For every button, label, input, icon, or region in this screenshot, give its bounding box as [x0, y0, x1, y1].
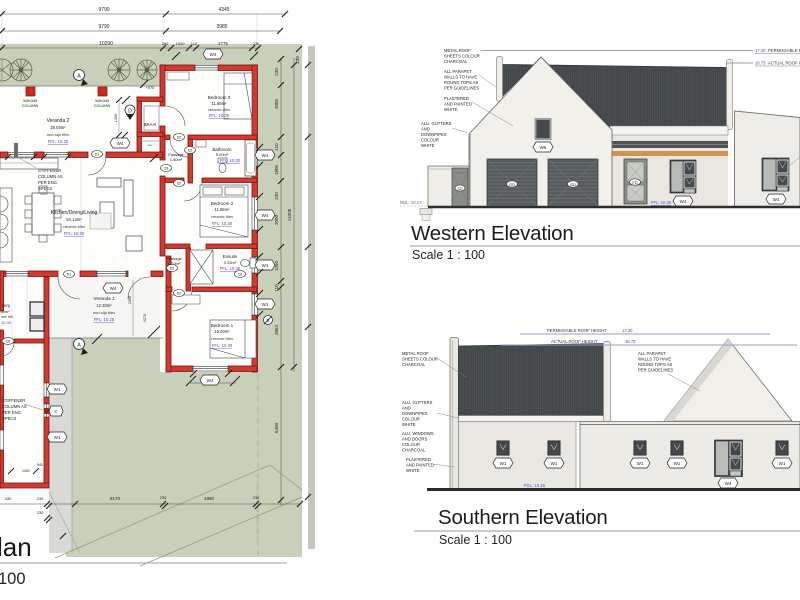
svg-text:ceramic tiles: ceramic tiles — [63, 224, 85, 229]
svg-text:345x345: 345x345 — [95, 99, 110, 103]
svg-text:D1: D1 — [95, 153, 100, 157]
svg-text:Kitchen/Dining/Living: Kitchen/Dining/Living — [51, 210, 98, 216]
svg-text:11.66m²: 11.66m² — [214, 207, 230, 212]
svg-text:W1: W1 — [551, 461, 558, 466]
svg-text:Scale 1 : 100: Scale 1 : 100 — [439, 533, 512, 547]
svg-text:WHITE: WHITE — [402, 422, 416, 427]
svg-text:W4: W4 — [680, 199, 687, 204]
svg-text:GD: GD — [570, 182, 576, 187]
svg-text:Scale 1 : 100: Scale 1 : 100 — [412, 248, 485, 262]
svg-text:3000: 3000 — [274, 98, 279, 109]
svg-text:10.30: 10.30 — [1, 320, 12, 325]
svg-text:110: 110 — [274, 143, 279, 151]
svg-text:W1: W1 — [54, 387, 61, 392]
svg-text:SPECS: SPECS — [2, 416, 16, 421]
svg-text:W4: W4 — [110, 286, 117, 291]
svg-text:Bedroom 3: Bedroom 3 — [208, 95, 231, 100]
svg-text:W4: W4 — [117, 141, 124, 146]
svg-text:940: 940 — [37, 463, 43, 467]
svg-text:PLASTERED: PLASTERED — [444, 96, 469, 101]
svg-text:PER GUIDELINES: PER GUIDELINES — [444, 86, 479, 91]
svg-text:FFL: 10.25: FFL: 10.25 — [94, 317, 115, 322]
svg-text:10290: 10290 — [99, 41, 113, 47]
svg-text:FFL: 10.30: FFL: 10.30 — [64, 231, 85, 236]
svg-text:ALU. GUTTERS: ALU. GUTTERS — [421, 121, 452, 126]
svg-text:1.80m²: 1.80m² — [170, 157, 183, 162]
svg-text:230: 230 — [274, 68, 279, 76]
svg-text:W5: W5 — [540, 145, 547, 150]
svg-text:230: 230 — [37, 496, 44, 501]
svg-text:AND: AND — [421, 127, 430, 132]
svg-text:METAL ROOF: METAL ROOF — [402, 351, 429, 356]
svg-text:PER GUIDELINES: PER GUIDELINES — [638, 368, 673, 373]
svg-text:STIFFENER: STIFFENER — [38, 168, 61, 173]
svg-text:COLUMN AS: COLUMN AS — [2, 404, 27, 409]
svg-text:W1: W1 — [54, 435, 61, 440]
svg-text:28.04m²: 28.04m² — [50, 125, 66, 130]
svg-text:D1: D1 — [67, 273, 72, 277]
svg-text:5.00m²: 5.00m² — [216, 152, 229, 157]
svg-text:5400: 5400 — [274, 422, 279, 433]
svg-text:W1: W1 — [779, 461, 786, 466]
svg-text:CHARCOAL: CHARCOAL — [402, 362, 426, 367]
svg-text:NGL: 10.17: NGL: 10.17 — [400, 200, 422, 205]
svg-text:+070: +070 — [146, 86, 155, 90]
svg-text:W1: W1 — [674, 461, 681, 466]
svg-text:C: C — [54, 409, 57, 414]
svg-text:W4: W4 — [207, 378, 214, 383]
svg-text:COLUMN AS: COLUMN AS — [38, 174, 63, 179]
svg-text:4345: 4345 — [218, 7, 229, 13]
svg-text:Western Elevation: Western Elevation — [411, 222, 574, 245]
svg-text:430: 430 — [5, 496, 12, 501]
svg-text:2775: 2775 — [218, 41, 229, 46]
svg-text:COLOUR: COLOUR — [402, 442, 420, 447]
svg-text:4890: 4890 — [204, 496, 215, 501]
svg-text:230: 230 — [160, 495, 167, 500]
svg-text:ALL PARAPET: ALL PARAPET — [638, 351, 666, 356]
svg-text:lan: lan — [0, 532, 32, 562]
svg-text:FFL: 10.30: FFL: 10.30 — [212, 221, 233, 226]
svg-text:Veranda 1: Veranda 1 — [94, 296, 115, 301]
svg-text:9790: 9790 — [98, 24, 109, 30]
svg-text:ROUND TOPS AS: ROUND TOPS AS — [444, 80, 478, 85]
svg-text:FFL: 10.25: FFL: 10.25 — [48, 139, 69, 144]
svg-text:Ensuite: Ensuite — [223, 254, 238, 259]
svg-text:ACTUAL ROOF HEIGHT: ACTUAL ROOF HEIGHT — [551, 339, 598, 344]
svg-text:WALLS TO HAVE: WALLS TO HAVE — [638, 357, 671, 362]
svg-text:BRAAI: BRAAI — [144, 122, 157, 127]
svg-text:D2: D2 — [188, 149, 193, 153]
svg-text:2300: 2300 — [128, 296, 132, 304]
svg-text:W4: W4 — [773, 197, 780, 202]
svg-text:WHITE: WHITE — [444, 107, 458, 112]
svg-text:1430: 1430 — [22, 469, 30, 473]
svg-text:345x345: 345x345 — [23, 99, 38, 103]
svg-text:230: 230 — [253, 41, 260, 46]
svg-text:DOWNPIPES: DOWNPIPES — [402, 411, 428, 416]
svg-text:230: 230 — [253, 495, 260, 500]
svg-text:PER ENG.: PER ENG. — [2, 410, 22, 415]
svg-text:FGL: 10.15: FGL: 10.15 — [524, 483, 546, 488]
svg-text:3.33m²: 3.33m² — [224, 260, 237, 265]
svg-text:16.73: 16.73 — [755, 61, 766, 66]
svg-text:17.30: 17.30 — [622, 328, 633, 333]
svg-text:230: 230 — [295, 56, 300, 64]
svg-text:STIFFENER: STIFFENER — [2, 398, 25, 403]
svg-text:W1: W1 — [637, 461, 644, 466]
svg-text:1300: 1300 — [114, 114, 118, 122]
svg-text:ALU. WINDOWS: ALU. WINDOWS — [402, 431, 434, 436]
svg-text:CHARCOAL: CHARCOAL — [402, 448, 426, 453]
svg-text:WALLS TO HAVE: WALLS TO HAVE — [444, 75, 477, 80]
svg-text:Veranda 2: Veranda 2 — [47, 118, 70, 124]
svg-text:METAL ROOF: METAL ROOF — [444, 48, 471, 53]
svg-text:W1: W1 — [262, 263, 269, 268]
svg-text:100: 100 — [0, 570, 26, 588]
svg-text:16.73: 16.73 — [625, 339, 636, 344]
svg-text:4270: 4270 — [143, 314, 147, 322]
svg-text:AND: AND — [402, 406, 411, 411]
svg-text:AND DOORS: AND DOORS — [402, 437, 428, 442]
svg-text:COLOUR: COLOUR — [402, 417, 420, 422]
svg-text:FFL: 10.30: FFL: 10.30 — [212, 343, 233, 348]
svg-text:D2: D2 — [170, 267, 175, 271]
svg-text:3985: 3985 — [216, 24, 227, 30]
svg-text:PERMISSABLE ROOF: PERMISSABLE ROOF — [768, 48, 800, 53]
svg-text:9790: 9790 — [98, 7, 109, 13]
svg-text:llery: llery — [2, 303, 11, 308]
svg-text:FFL: 10.30: FFL: 10.30 — [220, 158, 241, 163]
svg-text:110: 110 — [274, 284, 279, 292]
svg-text:W1: W1 — [262, 153, 269, 158]
svg-text:PERMISSABLE ROOF HEIGHT: PERMISSABLE ROOF HEIGHT — [547, 328, 607, 333]
svg-text:Bedroom 2: Bedroom 2 — [211, 201, 234, 206]
svg-text:W4: W4 — [262, 213, 269, 218]
svg-text:30m²: 30m² — [0, 309, 10, 314]
svg-text:W1: W1 — [262, 302, 269, 307]
svg-text:1000: 1000 — [176, 41, 186, 46]
svg-text:CHARCOAL: CHARCOAL — [444, 59, 468, 64]
svg-text:230: 230 — [37, 510, 44, 515]
svg-text:non-slip tiles: non-slip tiles — [47, 132, 69, 137]
svg-text:W4: W4 — [725, 481, 732, 486]
svg-text:FD: FD — [632, 180, 637, 185]
svg-text:FFL: 10.35: FFL: 10.35 — [220, 266, 241, 271]
svg-text:Southern Elevation: Southern Elevation — [438, 506, 608, 529]
svg-text:ceramic tiles: ceramic tiles — [211, 336, 233, 341]
svg-text:230: 230 — [274, 192, 279, 200]
svg-text:FFL: 10.25: FFL: 10.25 — [651, 200, 672, 205]
svg-text:ALL PARAPET: ALL PARAPET — [444, 69, 472, 74]
svg-text:C6: C6 — [6, 340, 11, 344]
svg-text:SPECS: SPECS — [38, 186, 52, 191]
svg-text:1800: 1800 — [274, 164, 279, 175]
svg-text:D: D — [128, 108, 132, 114]
svg-text:Bedroom 1: Bedroom 1 — [211, 323, 234, 328]
svg-text:ALU. GUTTERS: ALU. GUTTERS — [402, 400, 433, 405]
svg-text:FFL: 10.30: FFL: 10.30 — [209, 113, 230, 118]
svg-text:110: 110 — [191, 41, 198, 46]
svg-text:SHEETS COLOUR: SHEETS COLOUR — [444, 54, 480, 59]
svg-text:ceramic tiles: ceramic tiles — [211, 214, 233, 219]
svg-text:15.00m²: 15.00m² — [214, 329, 230, 334]
svg-text:AND PAINTED: AND PAINTED — [406, 463, 434, 468]
svg-text:SD: SD — [457, 187, 463, 191]
svg-text:COLUMN: COLUMN — [94, 104, 111, 108]
svg-text:WHITE: WHITE — [421, 143, 435, 148]
svg-text:non-slip tiles: non-slip tiles — [93, 310, 115, 315]
svg-text:54.13m²: 54.13m² — [66, 217, 82, 222]
svg-text:mic tile: mic tile — [1, 315, 13, 319]
svg-text:17.20: 17.20 — [755, 48, 766, 53]
svg-text:11.65m²: 11.65m² — [211, 101, 227, 106]
svg-text:SHEETS COLOUR: SHEETS COLOUR — [402, 357, 438, 362]
svg-text:W4: W4 — [210, 52, 217, 57]
svg-text:W1: W1 — [500, 461, 507, 466]
svg-text:PLASTERED: PLASTERED — [406, 457, 431, 462]
svg-text:COLOUR: COLOUR — [421, 138, 439, 143]
svg-text:ceramic tiles: ceramic tiles — [208, 107, 230, 112]
svg-text:D2: D2 — [177, 182, 182, 186]
svg-text:14300: 14300 — [287, 208, 292, 221]
svg-text:D2: D2 — [177, 292, 182, 296]
svg-text:2014: 2014 — [40, 192, 48, 196]
svg-text:COLUMN: COLUMN — [22, 104, 39, 108]
svg-text:8170: 8170 — [110, 496, 121, 501]
svg-text:GD: GD — [509, 182, 515, 187]
svg-text:DOWNPIPES: DOWNPIPES — [421, 132, 447, 137]
svg-text:PER ENG.: PER ENG. — [38, 180, 58, 185]
svg-text:12.30m²: 12.30m² — [96, 303, 112, 308]
svg-text:3863: 3863 — [274, 324, 279, 335]
svg-text:390: 390 — [162, 41, 169, 46]
svg-text:D2: D2 — [177, 136, 182, 140]
svg-text:ROUND TOPS AS: ROUND TOPS AS — [638, 362, 672, 367]
svg-text:AND PAINTED: AND PAINTED — [444, 102, 472, 107]
svg-text:WHITE: WHITE — [406, 468, 420, 473]
svg-text:C6: C6 — [164, 167, 169, 171]
svg-text:ACTUAL ROOF HEI: ACTUAL ROOF HEI — [768, 61, 800, 66]
svg-text:C6: C6 — [238, 273, 243, 277]
